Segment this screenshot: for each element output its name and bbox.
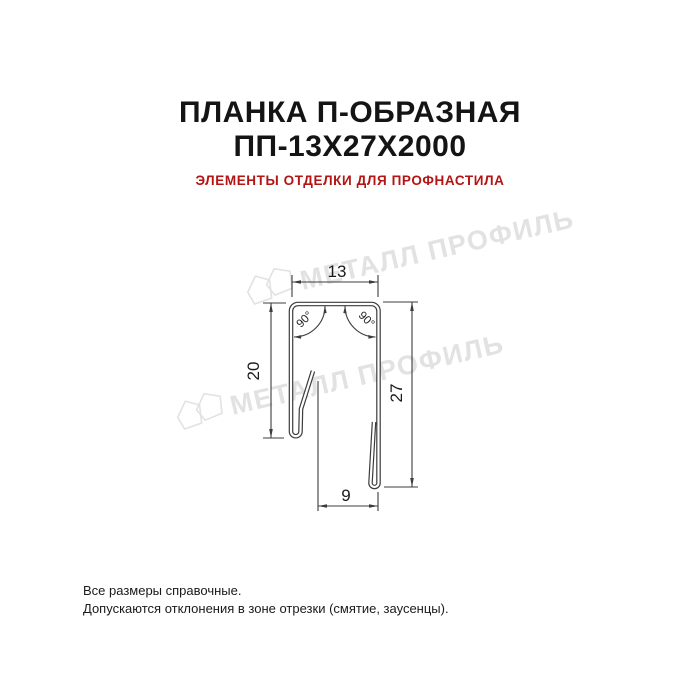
- watermark-text: МЕТАЛЛ ПРОФИЛЬ: [227, 328, 507, 420]
- dim-label-bottom-width: 9: [341, 486, 350, 505]
- watermark-upper: МЕТАЛЛ ПРОФИЛЬ: [244, 200, 577, 307]
- footer-notes: Все размеры справочные. Допускаются откл…: [83, 582, 449, 618]
- watermark-middle: МЕТАЛЛ ПРОФИЛЬ: [174, 325, 507, 432]
- dim-label-right-height: 27: [387, 384, 406, 403]
- dim-bottom-width: 9: [318, 381, 378, 511]
- angle-label-right: 90°: [356, 309, 377, 330]
- dim-label-left-height: 20: [244, 362, 263, 381]
- dim-label-top-width: 13: [328, 262, 347, 281]
- spec-sheet-page: ПЛАНКА П-ОБРАЗНАЯ ПП-13Х27Х2000 ЭЛЕМЕНТЫ…: [0, 0, 700, 700]
- angle-left: 90°: [294, 306, 327, 339]
- angle-right: 90°: [343, 306, 376, 339]
- footer-note-line2: Допускаются отклонения в зоне отрезки (с…: [83, 600, 449, 618]
- dim-left-height: 20: [244, 303, 286, 438]
- metall-profil-logo-icon: [174, 390, 226, 430]
- angle-label-left: 90°: [294, 309, 315, 330]
- dim-right-height: 27: [383, 302, 418, 487]
- metall-profil-logo-icon: [244, 265, 296, 305]
- footer-note-line1: Все размеры справочные.: [83, 582, 449, 600]
